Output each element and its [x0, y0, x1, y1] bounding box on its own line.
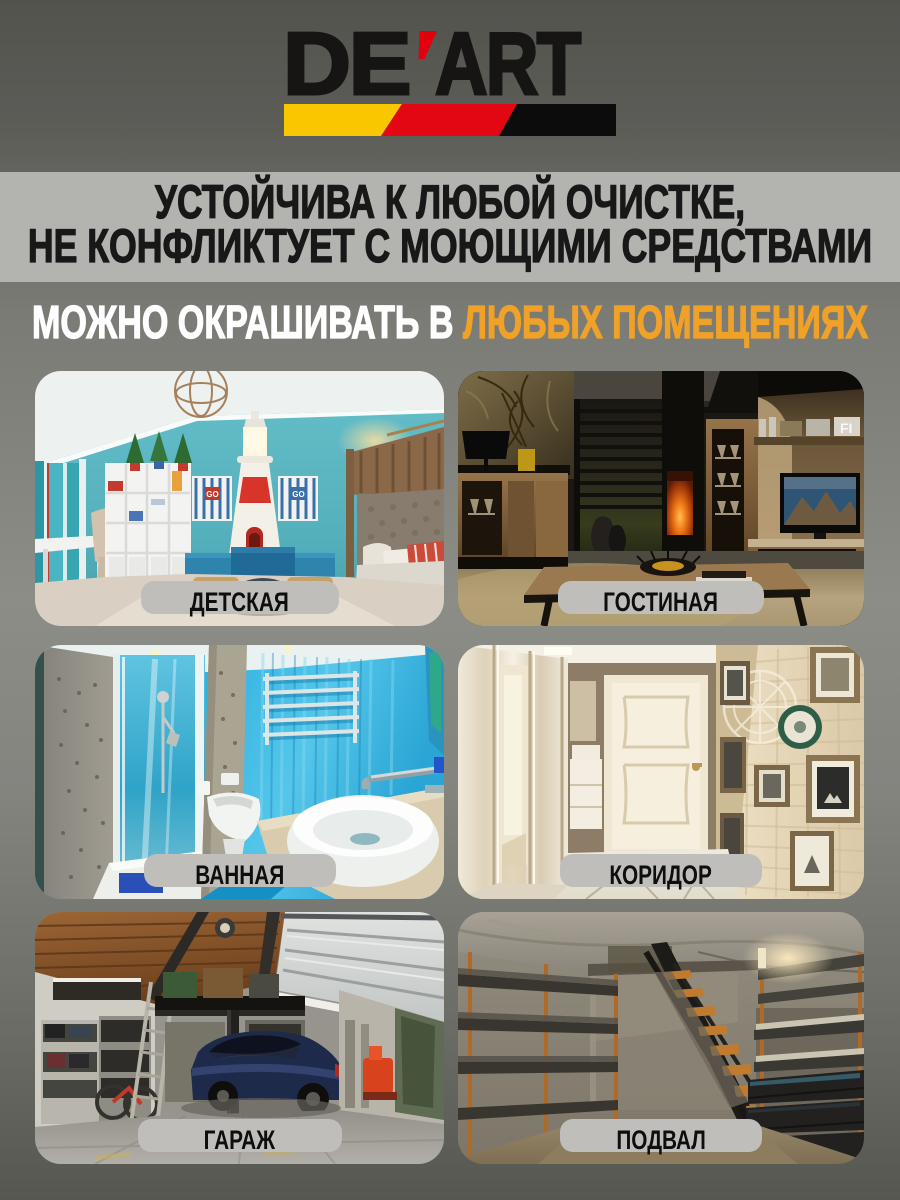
- svg-text:GO: GO: [292, 490, 304, 499]
- svg-text:FI: FI: [840, 420, 852, 436]
- svg-text:GO: GO: [206, 490, 218, 499]
